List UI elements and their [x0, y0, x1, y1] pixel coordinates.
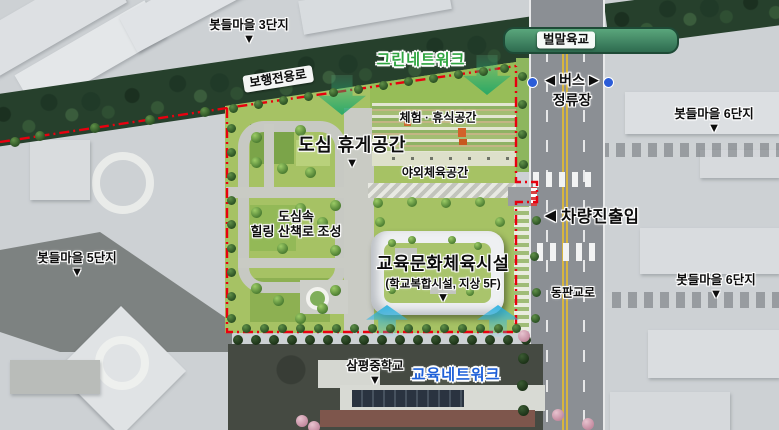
- tree-icon: [519, 160, 528, 169]
- tree-icon: [242, 324, 251, 333]
- bus-stop-line2: 정류장: [545, 90, 599, 110]
- bus-stop-dot: [603, 77, 614, 88]
- tree-icon: [233, 335, 243, 345]
- tree-icon: [330, 285, 341, 296]
- tree-icon: [354, 85, 363, 94]
- vehicle-access-arrow-icon: ◀: [545, 206, 557, 224]
- pointer-triangle-icon: ▼: [710, 288, 723, 300]
- tree-icon: [377, 335, 387, 345]
- tree-icon: [227, 148, 236, 157]
- crosswalk: [537, 243, 597, 261]
- tree-icon: [368, 324, 377, 333]
- marker-label: 봇들마을 3단지: [209, 14, 288, 33]
- tree-icon: [227, 220, 236, 229]
- school-brick-wing: [320, 410, 535, 427]
- tree-icon: [359, 335, 369, 345]
- outdoor-sports-label: 야외체육공간: [402, 164, 468, 181]
- marker-label: 봇들마을 5단지: [37, 247, 116, 266]
- tree-icon: [404, 324, 413, 333]
- tree-icon: [475, 197, 485, 207]
- tree-icon: [503, 335, 513, 345]
- tree-icon: [531, 314, 540, 323]
- tree-icon: [395, 335, 405, 345]
- tree-icon: [518, 72, 527, 81]
- tree-icon: [458, 324, 467, 333]
- tree-icon: [296, 324, 305, 333]
- bus-right-arrow-icon: ▶: [589, 72, 599, 88]
- tree-icon: [407, 197, 417, 207]
- tree-icon: [229, 104, 238, 113]
- marker-botdeul-3danji: 봇들마을 3단지 ▼: [209, 14, 288, 45]
- pointer-triangle-icon: ▼: [377, 292, 510, 304]
- tree-icon: [35, 131, 45, 141]
- tree-icon: [517, 380, 528, 391]
- tree-icon: [379, 81, 388, 90]
- tree-icon: [227, 244, 236, 253]
- tree-icon: [518, 330, 530, 342]
- marker-botdeul-5danji: 봇들마을 5단지 ▼: [37, 247, 116, 278]
- tree-icon: [474, 242, 482, 250]
- tree-icon: [518, 405, 529, 416]
- tree-icon: [332, 324, 341, 333]
- bg-building: [10, 360, 100, 394]
- tree-icon: [373, 198, 383, 208]
- green-network-label: 그린네트워크: [377, 49, 466, 70]
- tree-icon: [476, 324, 485, 333]
- vehicle-entrance-road: [508, 187, 532, 206]
- vehicle-access-label: ◀ 차량진출입: [545, 203, 640, 227]
- promenade: [368, 183, 516, 198]
- tree-icon: [329, 88, 338, 97]
- bg-building-circle: [95, 336, 149, 390]
- tree-icon: [494, 324, 503, 333]
- tree-icon: [278, 324, 287, 333]
- marker-label: 삼평중학교: [346, 355, 404, 374]
- healing-path-label: 도심속 힐링 산책로 조성: [251, 209, 342, 239]
- tree-icon: [295, 313, 306, 324]
- tree-icon: [227, 172, 236, 181]
- pointer-triangle-icon: ▼: [298, 157, 406, 169]
- tree-icon: [532, 288, 541, 297]
- tree-icon: [518, 100, 527, 109]
- tree-icon: [582, 418, 594, 430]
- curb-hatch: [531, 187, 537, 206]
- bus-stop-label: ◀ 버스 ▶ 정류장: [545, 70, 599, 110]
- tree-icon: [350, 324, 359, 333]
- bg-building: [30, 140, 90, 200]
- tree-icon: [341, 335, 351, 345]
- marker-botdeul-6danji-top: 봇들마을 6단지 ▼: [674, 103, 753, 134]
- tree-icon: [422, 324, 431, 333]
- tree-icon: [279, 96, 288, 105]
- tree-icon: [277, 163, 288, 174]
- tree-icon: [467, 335, 477, 345]
- tree-icon: [254, 100, 263, 109]
- tree-icon: [269, 335, 279, 345]
- bg-parking-cars: [600, 143, 779, 157]
- tree-icon: [296, 415, 308, 427]
- tree-icon: [388, 239, 396, 247]
- tree-icon: [518, 353, 529, 364]
- tree-icon: [314, 324, 323, 333]
- bg-building: [648, 330, 779, 378]
- tree-icon: [495, 217, 505, 227]
- tree-icon: [227, 314, 236, 323]
- tree-icon: [200, 107, 210, 117]
- bus-left-arrow-icon: ◀: [545, 72, 555, 88]
- pointer-triangle-icon: ▼: [708, 122, 721, 134]
- tree-icon: [251, 132, 262, 143]
- marker-botdeul-6danji-bottom: 봇들마을 6단지 ▼: [676, 269, 755, 300]
- marker-label: 봇들마을 6단지: [676, 269, 755, 288]
- tree-icon: [227, 196, 236, 205]
- tree-icon: [304, 92, 313, 101]
- crosswalk: [533, 172, 597, 187]
- tree-icon: [440, 324, 449, 333]
- tree-icon: [500, 64, 509, 73]
- tree-icon: [305, 335, 315, 345]
- tree-icon: [330, 245, 341, 256]
- tree-icon: [431, 335, 441, 345]
- facility-name: 교육문화체육시설: [377, 251, 510, 276]
- tree-icon: [287, 335, 297, 345]
- tree-icon: [408, 236, 416, 244]
- marker-label: 봇들마을 6단지: [674, 103, 753, 122]
- tree-icon: [277, 243, 288, 254]
- pointer-triangle-icon: ▼: [243, 33, 256, 45]
- tree-icon: [429, 74, 438, 83]
- tree-icon: [479, 67, 488, 76]
- pointer-triangle-icon: ▼: [71, 266, 84, 278]
- bg-building: [610, 392, 730, 430]
- tree-icon: [251, 335, 261, 345]
- marker-sampyeong-school: 삼평중학교 ▼: [346, 355, 404, 386]
- tree-icon: [308, 421, 320, 430]
- tree-icon: [530, 252, 539, 261]
- tree-icon: [227, 124, 236, 133]
- tree-icon: [404, 77, 413, 86]
- tree-icon: [227, 292, 236, 301]
- bridge-label: 벌말육교: [537, 32, 595, 49]
- tree-icon: [485, 335, 495, 345]
- tree-icon: [532, 216, 541, 225]
- site-plan-map: 봇들마을 3단지 ▼ 보행전용로 그린네트워크 벌말육교 ◀ 버스 ▶ 정류장 …: [0, 0, 779, 430]
- tree-icon: [375, 217, 385, 227]
- tree-icon: [454, 70, 463, 79]
- bus-stop-line1: 버스: [559, 70, 585, 90]
- tree-icon: [448, 236, 456, 244]
- tree-icon: [251, 157, 262, 168]
- bg-building: [298, 0, 452, 35]
- tree-icon: [449, 335, 459, 345]
- bg-building: [640, 228, 779, 274]
- tree-icon: [323, 335, 333, 345]
- tree-icon: [260, 324, 269, 333]
- education-network-label: 교육네트워크: [412, 364, 501, 385]
- school-solar-panels: [352, 390, 464, 407]
- pointer-triangle-icon: ▼: [369, 374, 382, 386]
- tree-icon: [441, 198, 451, 208]
- tree-icon: [227, 268, 236, 277]
- tree-icon: [413, 335, 423, 345]
- tree-icon: [10, 137, 20, 147]
- tree-icon: [273, 295, 284, 306]
- tree-icon: [317, 303, 328, 314]
- bg-building-circle: [92, 152, 154, 214]
- experience-space-label: 체험 · 휴식공간: [400, 109, 477, 126]
- urban-rest-space-label: 도심 휴게공간 ▼: [298, 131, 406, 169]
- tree-icon: [552, 409, 564, 421]
- bus-stop-dot: [527, 77, 538, 88]
- tree-icon: [145, 115, 155, 125]
- tree-icon: [518, 130, 527, 139]
- tree-icon: [251, 283, 262, 294]
- tree-icon: [90, 123, 100, 133]
- road-label-dongpan: 동판교로: [551, 284, 595, 301]
- tree-icon: [386, 324, 395, 333]
- facility-label: 교육문화체육시설 (학교복합시설, 지상 5F) ▼: [377, 251, 510, 304]
